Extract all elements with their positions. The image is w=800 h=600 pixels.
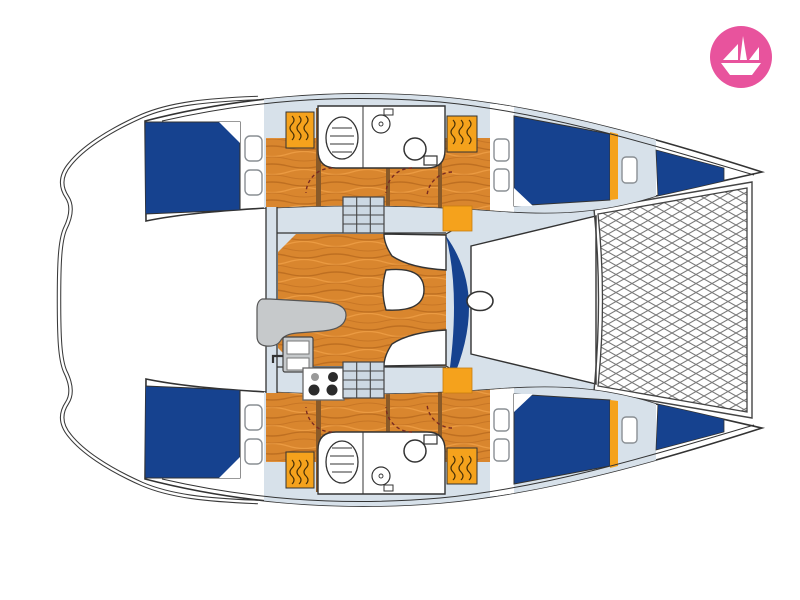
- stove: [303, 368, 344, 400]
- burner: [311, 373, 319, 381]
- chart-table: [443, 206, 472, 231]
- floorplan-svg: [0, 0, 800, 600]
- dinette-table: [383, 269, 424, 310]
- paper-boat-logo: [710, 26, 772, 88]
- burner: [309, 385, 320, 396]
- companionway-stairs-port: [343, 197, 384, 233]
- locker-module: [443, 368, 472, 393]
- companionway-stairs-starboard: [343, 362, 384, 398]
- burner: [328, 372, 338, 382]
- shower-basin: [326, 117, 358, 159]
- washbasin: [372, 115, 390, 133]
- bathroom-port: [318, 106, 445, 168]
- catamaran-floorplan-image: [0, 0, 800, 600]
- washbasin-tap: [384, 109, 393, 115]
- hatch: [245, 170, 262, 195]
- bow-bulkhead-strip: [610, 132, 618, 200]
- trampoline-net: [594, 182, 752, 418]
- hatch: [245, 136, 262, 161]
- hatch: [622, 157, 637, 183]
- hatch: [494, 169, 509, 191]
- toilet: [404, 138, 426, 160]
- aft-cabin-bed-port: [145, 122, 240, 214]
- mast-base: [467, 292, 493, 311]
- toilet-tank: [424, 156, 437, 165]
- hatch: [494, 139, 509, 161]
- burner: [327, 385, 338, 396]
- wardrobe-locker: [447, 116, 477, 152]
- wardrobe-locker: [286, 112, 314, 148]
